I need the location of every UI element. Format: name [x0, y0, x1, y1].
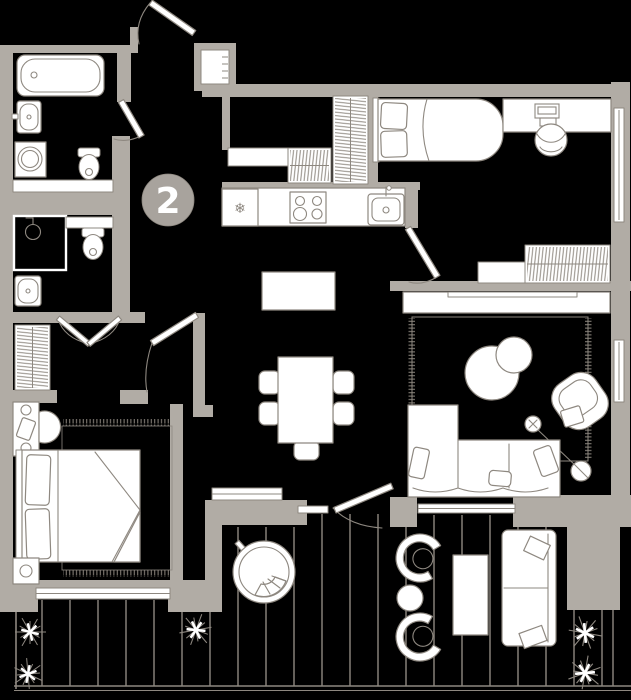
- coffee-table-small: [496, 337, 532, 373]
- hall-wardrobe-a: [288, 148, 331, 183]
- bathroom-counter: [13, 180, 113, 192]
- unit-number: 2: [155, 181, 180, 222]
- dining-chair: [259, 371, 280, 394]
- dining-chair: [333, 402, 354, 425]
- utility-shaft: [201, 50, 229, 84]
- tv: [448, 292, 577, 297]
- outdoor-sofa: [502, 530, 556, 649]
- toilet: [78, 148, 100, 180]
- bathroom2-sink: [15, 276, 41, 306]
- dresser: [478, 262, 525, 283]
- walk-in-closet: [15, 325, 50, 390]
- terrace-door-threshold: [298, 506, 328, 513]
- single-bed: [373, 98, 503, 162]
- stove: [290, 192, 326, 223]
- tv-console: [403, 292, 610, 313]
- dining-chair: [259, 402, 280, 425]
- dining-chair: [294, 441, 319, 460]
- dining-chair: [333, 371, 354, 394]
- hall-console: [228, 148, 288, 166]
- washing-machine: [15, 142, 46, 177]
- dining-table: [278, 357, 333, 443]
- nightstand: [13, 558, 39, 584]
- floor-plan-svg: 2 ❄: [0, 0, 631, 700]
- hall-wardrobe-b: [333, 96, 368, 184]
- floor-plan: 2 ❄: [0, 0, 631, 700]
- terrace-side-table: [397, 585, 423, 611]
- double-bed: [16, 450, 140, 562]
- bathtub: [17, 55, 104, 96]
- snowflake-icon: ❄: [234, 201, 246, 217]
- terrace-table: [453, 555, 488, 635]
- kitchen-island: [262, 272, 335, 310]
- hanging-chair: [233, 540, 295, 603]
- toilet-2: [82, 228, 104, 260]
- bedroom1-wardrobe: [525, 245, 610, 283]
- shelf: [66, 217, 113, 228]
- desk-chair: [535, 124, 567, 156]
